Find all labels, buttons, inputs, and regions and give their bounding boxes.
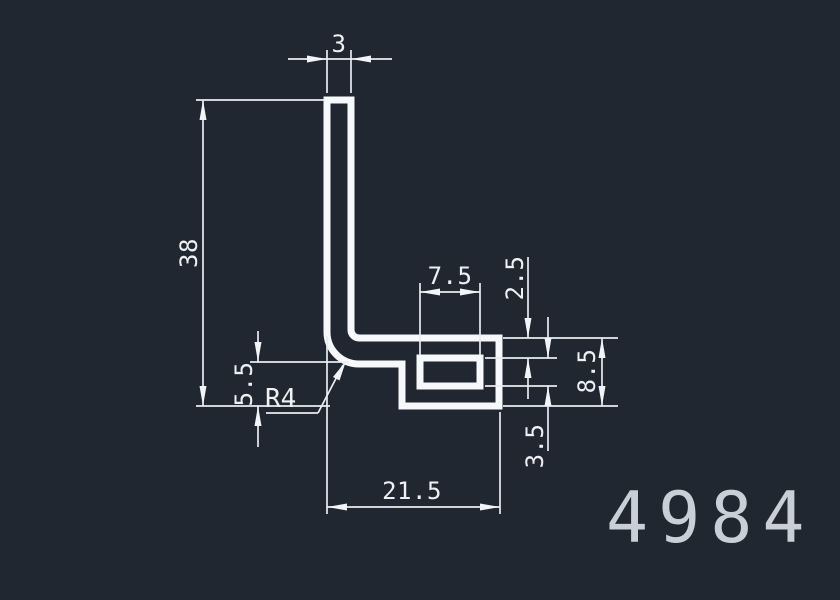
cad-canvas: 3 38 5.5 7.5 (0, 0, 840, 600)
dim-label-bottom-width: 21.5 (382, 477, 442, 505)
dim-label-right-height: 8.5 (573, 349, 601, 394)
dim-label-total-height: 38 (175, 238, 203, 268)
dim-label-hole-width: 7.5 (428, 262, 473, 290)
dim-label-corner-radius: R4 (265, 384, 296, 414)
cad-drawing: 3 38 5.5 7.5 (0, 0, 840, 600)
part-number: 4984 (606, 477, 815, 559)
dim-label-hole-height: 3.5 (521, 424, 549, 469)
dim-label-step-height: 5.5 (230, 362, 258, 407)
dim-label-leg-width: 3 (332, 30, 347, 58)
dim-label-top-wall: 2.5 (501, 256, 529, 301)
